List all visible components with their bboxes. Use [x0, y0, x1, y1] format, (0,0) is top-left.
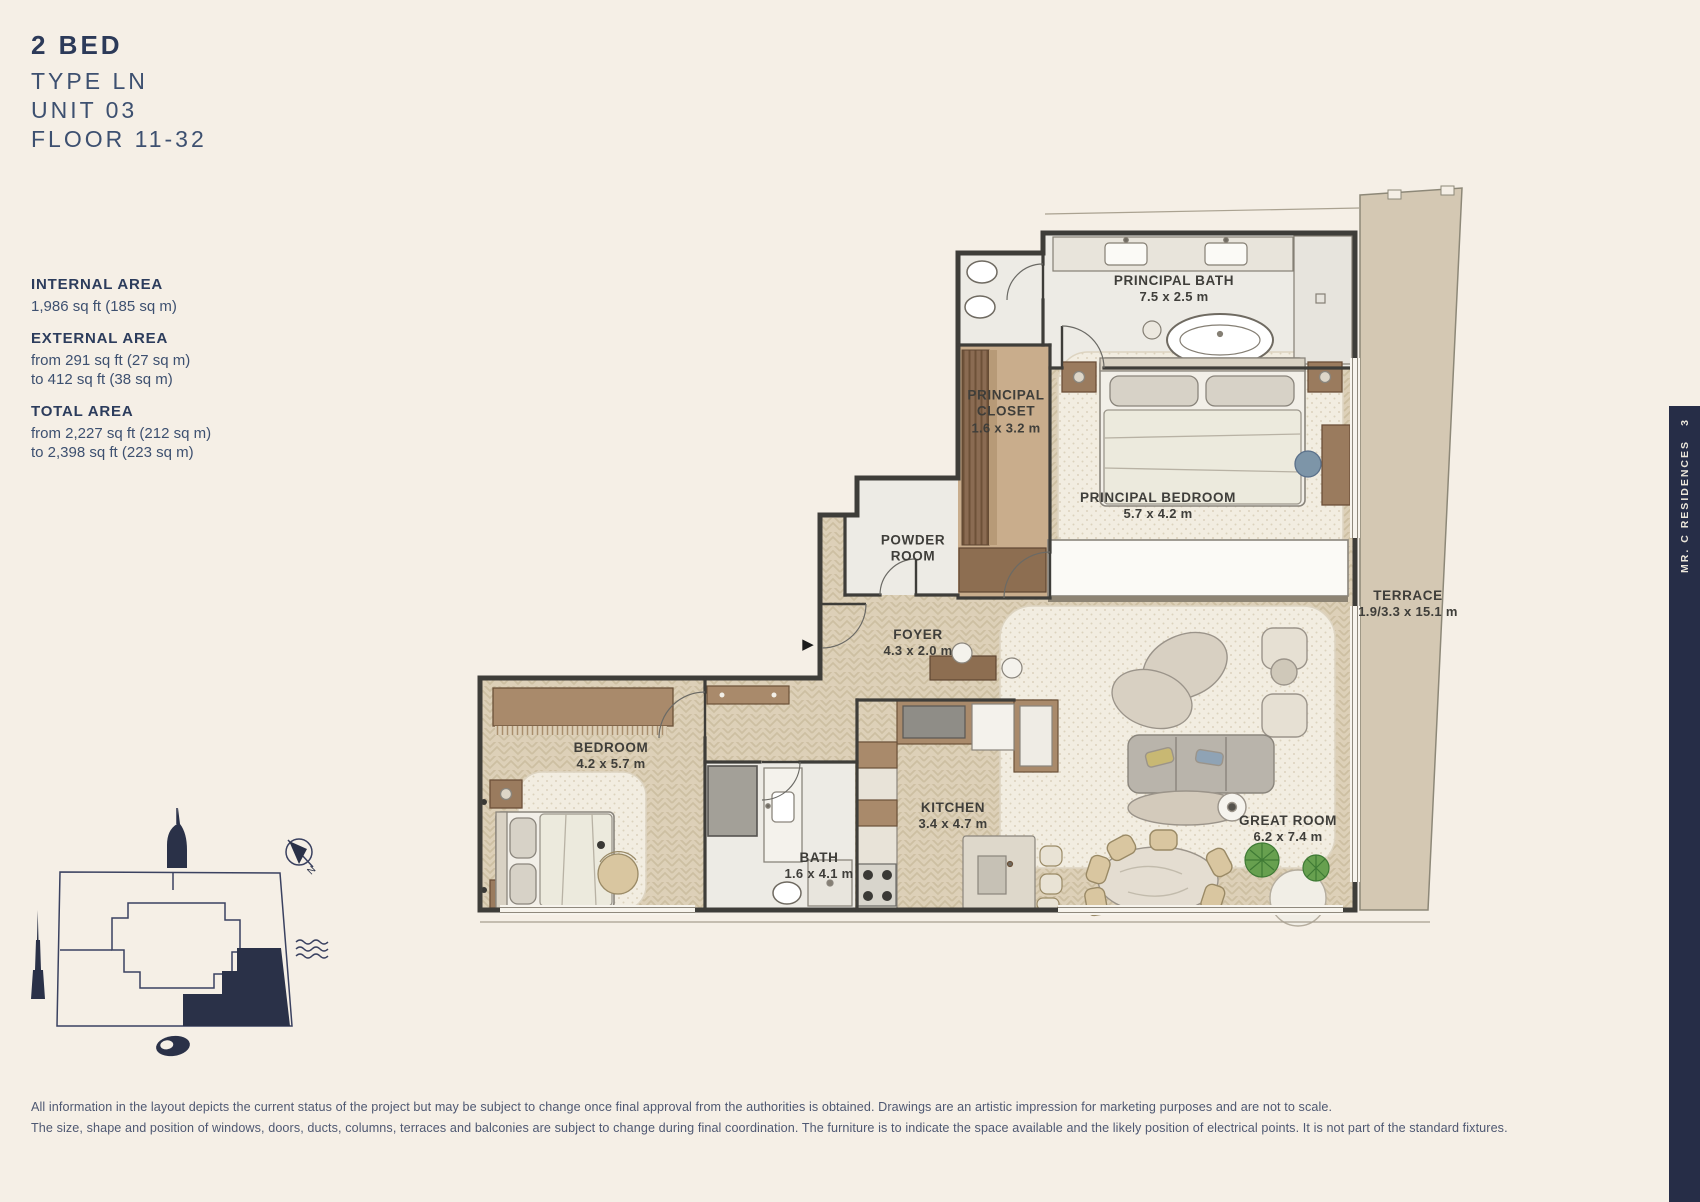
unit-number: UNIT 03 — [31, 96, 207, 125]
room-label-great-room: GREAT ROOM 6.2 x 7.4 m — [1223, 813, 1353, 845]
disclaimer-line-1: All information in the layout depicts th… — [31, 1100, 1332, 1114]
area-summary: INTERNAL AREA 1,986 sq ft (185 sq m) EXT… — [31, 276, 291, 476]
burj-al-arab-icon — [167, 808, 187, 868]
external-area: EXTERNAL AREA from 291 sq ft (27 sq m) t… — [31, 330, 291, 389]
total-area: TOTAL AREA from 2,227 sq ft (212 sq m) t… — [31, 403, 291, 462]
compass-icon: N — [286, 839, 318, 877]
page-number: 3 — [1679, 418, 1691, 426]
burj-khalifa-icon — [31, 910, 45, 999]
unit-type: TYPE LN — [31, 67, 207, 96]
room-label-kitchen: KITCHEN 3.4 x 4.7 m — [918, 800, 987, 832]
room-label-bath: BATH 1.6 x 4.1 m — [773, 850, 865, 882]
hall-console — [707, 686, 789, 704]
room-label-terrace: TERRACE 1.9/3.3 x 15.1 m — [1348, 588, 1468, 620]
compass-north-label: N — [305, 864, 318, 877]
room-label-powder-room: POWDER ROOM — [868, 533, 958, 566]
room-label-principal-bath: PRINCIPAL BATH 7.5 x 2.5 m — [1114, 273, 1234, 305]
building-core — [112, 903, 240, 988]
tv-console — [1048, 540, 1348, 602]
floor-range: FLOOR 11-32 — [31, 125, 207, 154]
page-title: 2 BED — [31, 30, 207, 61]
internal-area: INTERNAL AREA 1,986 sq ft (185 sq m) — [31, 276, 291, 316]
room-label-bedroom: BEDROOM 4.2 x 5.7 m — [541, 740, 681, 772]
room-label-principal-bedroom: PRINCIPAL BEDROOM 5.7 x 4.2 m — [1048, 490, 1268, 522]
page-edge-tab: 3 MR. C RESIDENCES — [1669, 406, 1700, 1202]
disclaimer-line-2: The size, shape and position of windows,… — [31, 1121, 1508, 1135]
brand-name: MR. C RESIDENCES — [1679, 440, 1691, 573]
room-label-foyer: FOYER 4.3 x 2.0 m — [883, 627, 952, 659]
title-block: 2 BED TYPE LN UNIT 03 FLOOR 11-32 — [31, 30, 207, 154]
room-label-principal-closet: PRINCIPAL CLOSET 1.6 x 3.2 m — [956, 388, 1056, 437]
entry-arrow-icon: ▶ — [802, 635, 814, 653]
island-icon — [155, 1034, 191, 1059]
highlighted-unit — [183, 948, 290, 1026]
waves-icon — [296, 940, 328, 958]
key-plan: N — [31, 808, 328, 1058]
